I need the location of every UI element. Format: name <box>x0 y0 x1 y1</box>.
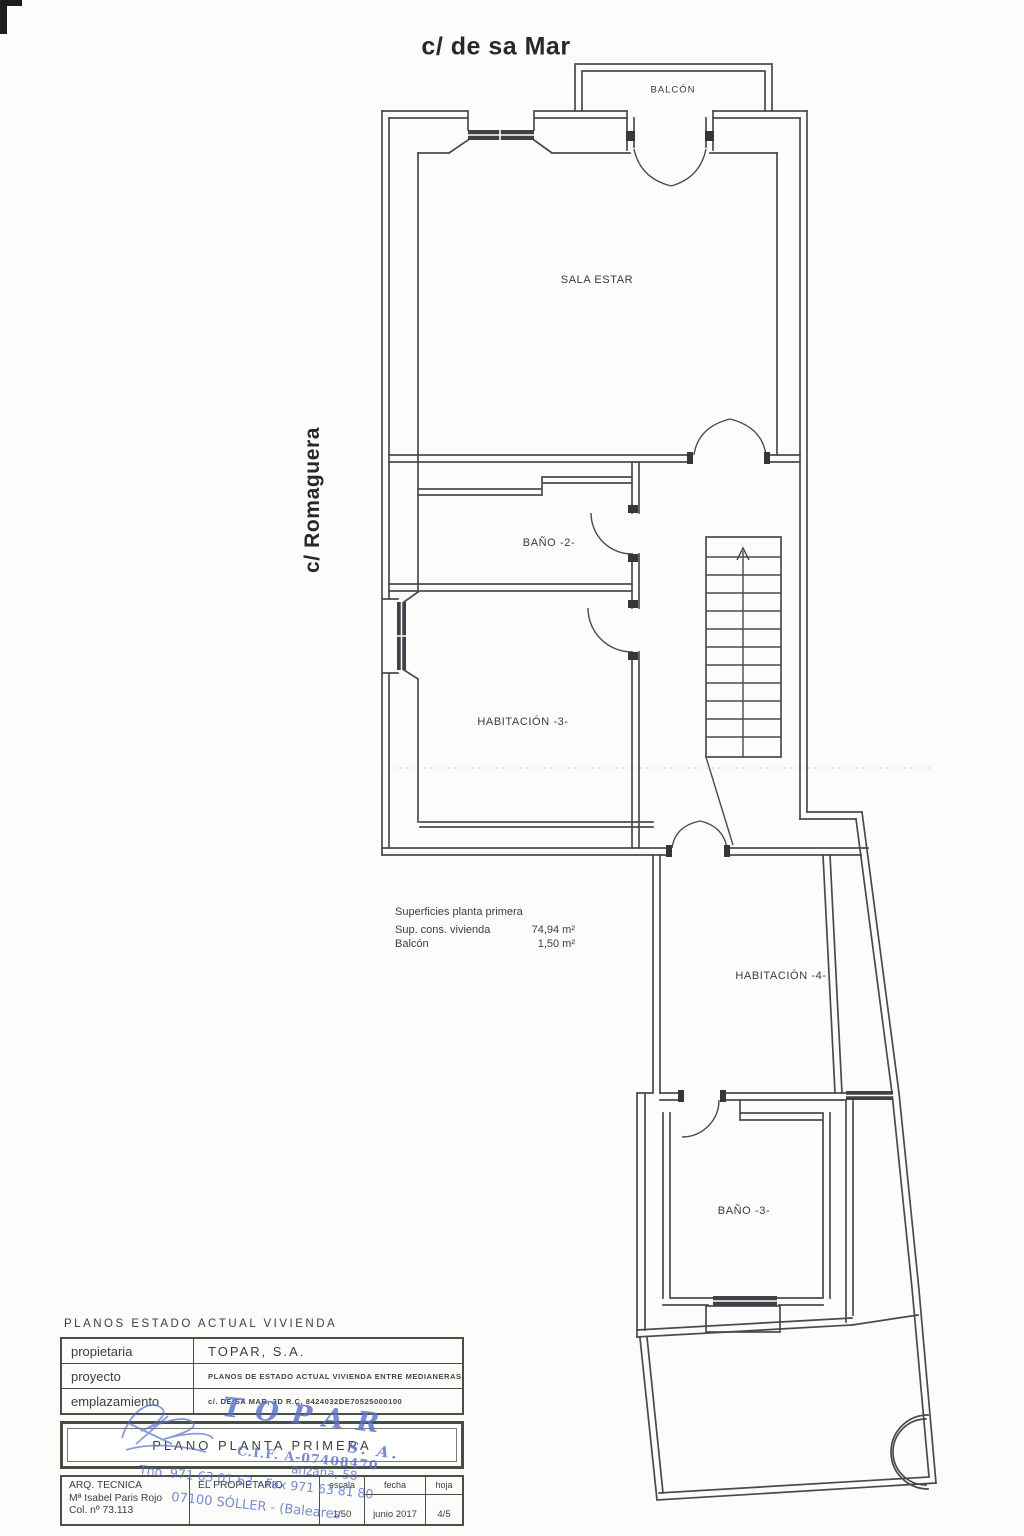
room-label-bano3: BAÑO -3- <box>718 1205 770 1217</box>
bano3-door <box>682 1100 719 1137</box>
room-label-sala-estar: SALA ESTAR <box>561 274 633 286</box>
street-label-top: c/ de sa Mar <box>421 33 570 62</box>
room-label-bano2: BAÑO -2- <box>523 537 575 549</box>
date-value: junio 2017 <box>365 1509 425 1520</box>
sheet-cell: hoja 4/5 <box>426 1477 462 1524</box>
street-label-left: c/ Romaguera <box>301 427 325 573</box>
surface-label: Sup. cons. vivienda <box>395 924 490 936</box>
row-label: propietaria <box>62 1339 194 1363</box>
bano2-door <box>591 513 632 554</box>
title-block-heading: PLANOS ESTADO ACTUAL VIVIENDA <box>64 1318 464 1330</box>
staircase <box>706 537 781 845</box>
room-label-habitacion3: HABITACIÓN -3- <box>477 716 568 728</box>
surfaces-summary: Superficies planta primera Sup. cons. vi… <box>395 906 575 950</box>
sheet-value: 4/5 <box>426 1509 462 1520</box>
surface-value: 74,94 m² <box>532 924 575 936</box>
surfaces-title: Superficies planta primera <box>395 906 575 918</box>
walls <box>382 64 936 1500</box>
surfaces-row: Balcón 1,50 m² <box>395 938 575 950</box>
architect-college-number: Col. nº 73.113 <box>69 1505 189 1518</box>
surfaces-row: Sup. cons. vivienda 74,94 m² <box>395 924 575 936</box>
scanned-floor-plan-page: c/ de sa Mar c/ Romaguera BALCÓN SALA ES… <box>0 0 1024 1536</box>
scan-edge-mark <box>0 0 22 34</box>
surface-value: 1,50 m² <box>538 938 575 950</box>
table-row: propietaria TOPAR, S.A. <box>62 1339 462 1363</box>
sala-estar-double-door <box>694 419 766 455</box>
hall-habitacion4-door <box>672 821 727 848</box>
surface-label: Balcón <box>395 938 429 950</box>
table-row: proyecto PLANOS DE ESTADO ACTUAL VIVIEND… <box>62 1363 462 1388</box>
balcony-double-door <box>634 149 706 186</box>
door-jambs <box>626 131 770 1102</box>
doors <box>588 149 766 1137</box>
room-label-balcon: BALCÓN <box>650 85 695 96</box>
date-cell: fecha junio 2017 <box>365 1477 426 1524</box>
floor-plan-drawing <box>0 0 1024 1536</box>
row-label: proyecto <box>62 1364 194 1388</box>
room-label-habitacion4: HABITACIÓN -4- <box>735 970 826 982</box>
row-value: TOPAR, S.A. <box>208 1344 305 1359</box>
row-value: PLANOS DE ESTADO ACTUAL VIVIENDA ENTRE M… <box>208 1372 462 1381</box>
habitacion3-door <box>588 608 632 652</box>
sheet-label: hoja <box>426 1477 462 1495</box>
